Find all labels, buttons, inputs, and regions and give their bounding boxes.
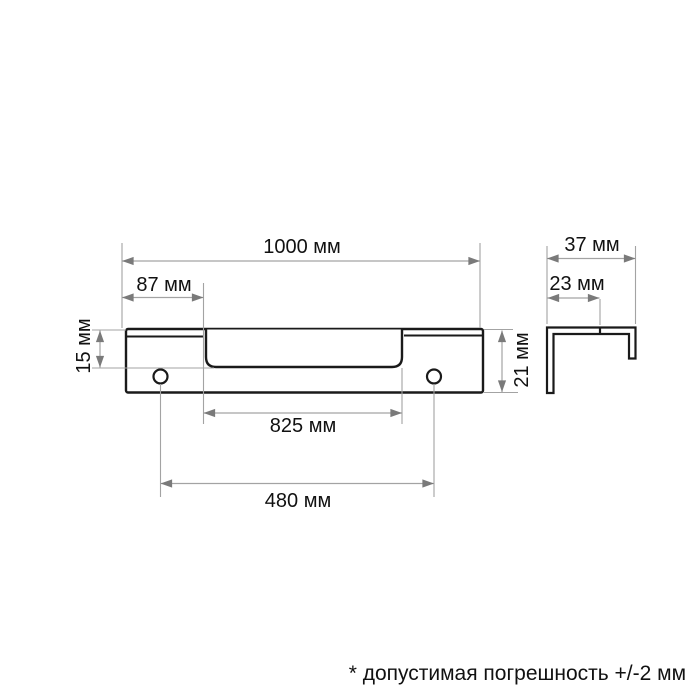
side-view (547, 327, 636, 393)
mounting-hole-right (427, 370, 441, 384)
tolerance-footnote: * допустимая погрешность +/-2 мм (349, 662, 686, 686)
technical-drawing: 1000 мм 87 мм 15 мм 21 мм 825 мм (0, 0, 700, 700)
dim-label-end-offset: 87 мм (136, 274, 191, 296)
dim-label-recess-length: 825 мм (270, 415, 336, 437)
profile-cross-section (547, 328, 636, 394)
front-view (126, 329, 483, 393)
dimension-hole-spacing: 480 мм (161, 384, 435, 512)
dim-label-recess-depth: 15 мм (73, 318, 95, 373)
dimension-profile-height: 21 мм (484, 330, 533, 393)
dimension-inner-offset: 23 мм (548, 273, 605, 325)
handle-recess-outline (206, 330, 402, 368)
dim-label-profile-width: 37 мм (564, 234, 619, 256)
mounting-hole-left (154, 370, 168, 384)
dim-label-profile-height: 21 мм (511, 332, 533, 387)
dim-label-total-length: 1000 мм (263, 236, 341, 258)
dim-label-hole-spacing: 480 мм (265, 490, 331, 512)
drawing-canvas: 1000 мм 87 мм 15 мм 21 мм 825 мм (0, 0, 700, 700)
dim-label-inner-offset: 23 мм (549, 273, 604, 295)
